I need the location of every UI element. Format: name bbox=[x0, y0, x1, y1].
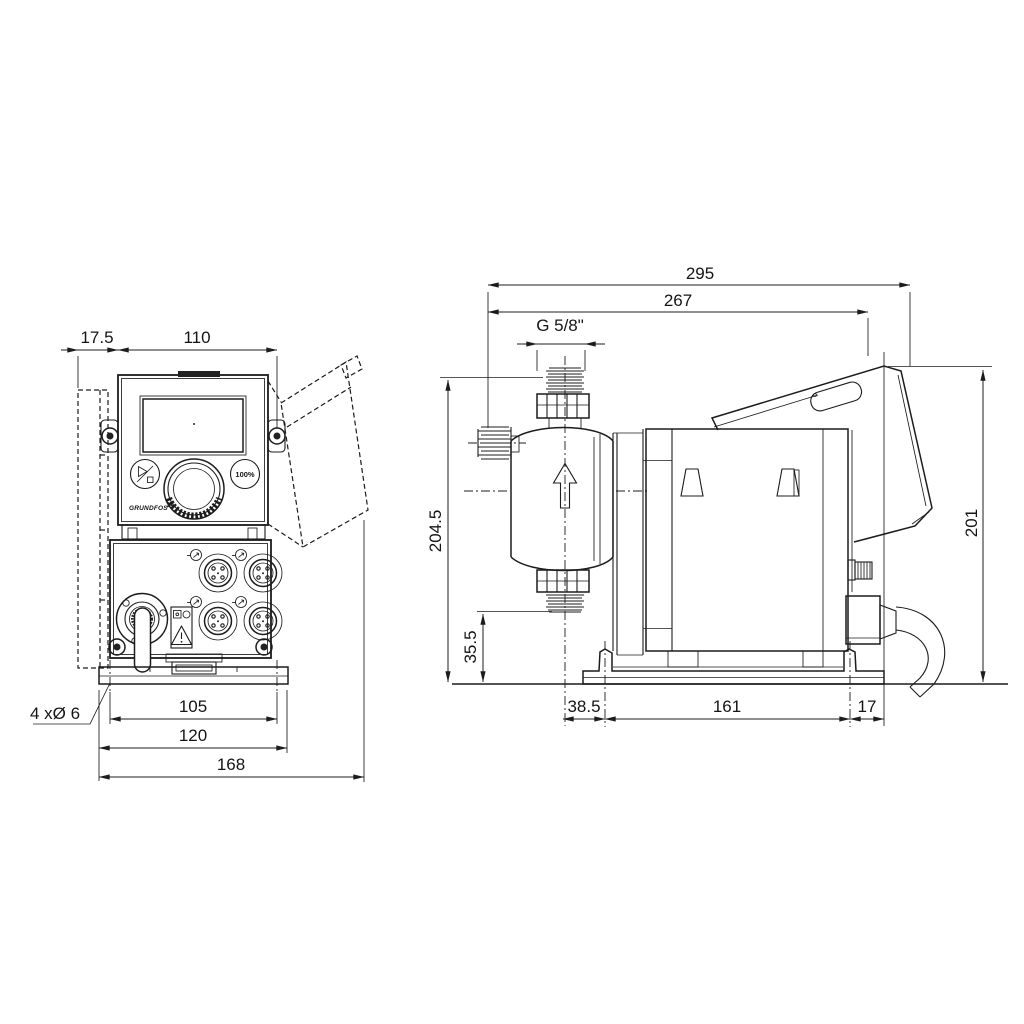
svg-text:105: 105 bbox=[179, 697, 207, 716]
svg-text:G 5/8": G 5/8" bbox=[536, 316, 584, 335]
run-stop-icon bbox=[137, 466, 153, 483]
rear-stud-collar bbox=[848, 560, 855, 580]
head-adapter bbox=[613, 429, 672, 655]
warning-label bbox=[171, 607, 192, 648]
connection-panel bbox=[109, 540, 282, 672]
svg-text:17: 17 bbox=[858, 697, 877, 716]
svg-text:110: 110 bbox=[183, 328, 210, 347]
warning-triangle-icon bbox=[172, 626, 192, 645]
front-view: 100% GRUNDFOS bbox=[78, 356, 368, 692]
side-view bbox=[452, 356, 1008, 727]
dimensional-drawing: 100% GRUNDFOS bbox=[0, 0, 1024, 1024]
svg-text:38.5: 38.5 bbox=[567, 697, 600, 716]
cube-skirt bbox=[122, 525, 265, 539]
dim-front-offset: 17.5 bbox=[61, 328, 118, 388]
dim-side-head-offset: 38.5 bbox=[563, 697, 605, 719]
mount-hook-right bbox=[777, 469, 799, 496]
dim-side-height-head: 204.5 bbox=[426, 378, 543, 683]
brand-text: GRUNDFOS bbox=[129, 505, 168, 512]
relief-knob bbox=[478, 427, 519, 459]
run-stop-button bbox=[131, 460, 160, 489]
click-wheel bbox=[164, 459, 224, 519]
motor-housing bbox=[646, 429, 852, 651]
inlet-union-nut bbox=[537, 570, 589, 592]
dim-side-thread: G 5/8" bbox=[517, 316, 605, 371]
svg-text:168: 168 bbox=[217, 755, 245, 774]
control-cover-tilted bbox=[712, 366, 932, 542]
rear-stud-thread bbox=[855, 562, 872, 579]
outlet-union-nut bbox=[537, 394, 589, 418]
svg-text:17.5: 17.5 bbox=[80, 328, 113, 347]
svg-text:120: 120 bbox=[179, 726, 207, 745]
rear-connections bbox=[846, 560, 945, 697]
top-tab bbox=[178, 371, 220, 377]
dim-side-hole-spacing: 161 bbox=[605, 697, 850, 719]
dim-side-height-rear: 201 bbox=[888, 367, 992, 683]
svg-text:295: 295 bbox=[686, 264, 714, 283]
dim-side-rear-offset: 17 bbox=[850, 697, 884, 719]
power-cable-front bbox=[135, 608, 151, 672]
cable-gland-block bbox=[846, 596, 880, 644]
dim-front-hole-note: 4 xØ 6 bbox=[30, 683, 110, 724]
drawing-canvas: 100% GRUNDFOS bbox=[0, 0, 1024, 1024]
svg-text:267: 267 bbox=[664, 291, 692, 310]
display bbox=[140, 396, 246, 455]
svg-text:4 xØ 6: 4 xØ 6 bbox=[30, 704, 80, 723]
svg-text:35.5: 35.5 bbox=[461, 630, 480, 663]
inlet-thread bbox=[546, 595, 584, 612]
strain-relief bbox=[880, 605, 896, 639]
dim-side-height-outlet: 35.5 bbox=[461, 612, 552, 683]
dim-front-hole-spacing: 105 bbox=[110, 692, 277, 724]
hundred-percent-label: 100% bbox=[235, 470, 255, 479]
mounting-plate-front bbox=[99, 654, 288, 692]
control-cube-front: 100% GRUNDFOS bbox=[101, 371, 285, 539]
hundred-percent-button: 100% bbox=[231, 460, 260, 489]
grip-slot bbox=[809, 380, 864, 413]
dim-front-width: 110 bbox=[118, 328, 277, 428]
svg-text:204.5: 204.5 bbox=[426, 510, 445, 553]
outlet-thread bbox=[546, 368, 584, 392]
svg-text:201: 201 bbox=[962, 509, 981, 537]
svg-text:161: 161 bbox=[713, 697, 741, 716]
mount-hook-left bbox=[681, 469, 703, 496]
